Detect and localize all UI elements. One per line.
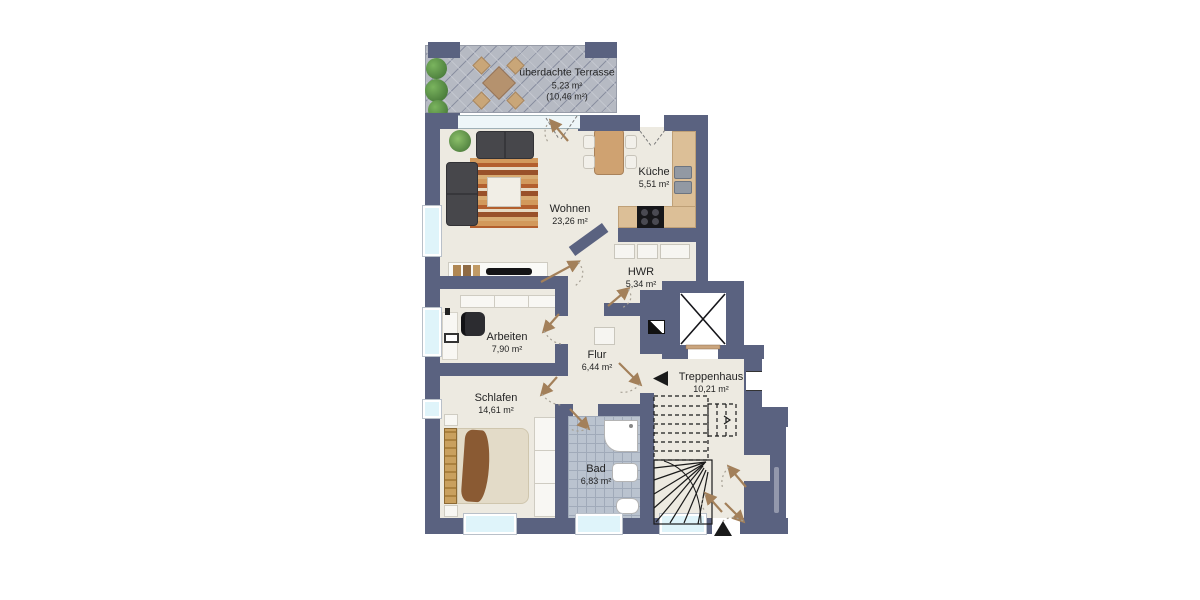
- wall: [425, 416, 440, 518]
- washer: [637, 244, 658, 259]
- wall: [744, 407, 788, 427]
- dining-chair: [625, 135, 637, 149]
- window: [423, 308, 441, 356]
- sofa: [476, 131, 534, 159]
- room-label-wohnen: Wohnen 23,26 m²: [550, 202, 591, 228]
- washbasin: [612, 463, 638, 482]
- window: [660, 514, 706, 534]
- wall: [696, 128, 708, 281]
- wall: [740, 518, 788, 534]
- wall: [425, 113, 460, 129]
- floor-staircase-niche: [744, 455, 770, 481]
- cabinet: [594, 327, 615, 345]
- nightstand: [444, 505, 458, 517]
- wall: [425, 128, 440, 208]
- dining-chair: [625, 155, 637, 169]
- wall-lamp: [445, 308, 450, 315]
- books: [473, 265, 480, 276]
- tv-soundbar: [486, 268, 532, 275]
- wall: [425, 518, 468, 534]
- shower-drain: [629, 424, 633, 428]
- toilet: [616, 498, 639, 514]
- burner: [652, 209, 659, 216]
- entrance-arrow-icon: [714, 521, 732, 536]
- bed-headboard: [444, 428, 457, 504]
- terrace-glass-door: [458, 115, 580, 129]
- nightstand: [444, 414, 458, 426]
- wall: [425, 354, 440, 402]
- washer: [614, 244, 635, 259]
- dining-chair: [583, 135, 595, 149]
- room-label-treppenhaus: Treppenhaus 10,21 m²: [679, 370, 743, 396]
- elevator-door-gap: [688, 349, 718, 359]
- wall: [744, 481, 770, 518]
- room-label-flur: Flur 6,44 m²: [582, 348, 613, 374]
- wall: [555, 276, 568, 316]
- wall: [514, 518, 578, 534]
- room-label-kueche: Küche 5,51 m²: [638, 165, 669, 191]
- wall: [425, 363, 568, 376]
- window: [423, 206, 441, 256]
- wall: [744, 427, 770, 455]
- coffee-table: [487, 177, 521, 207]
- sofa: [446, 162, 478, 226]
- kitchen-sink: [674, 181, 692, 194]
- wall: [620, 518, 662, 534]
- room-label-hwr: HWR 5,34 m²: [626, 265, 657, 291]
- window: [464, 514, 516, 534]
- room-label-arbeiten: Arbeiten 7,90 m²: [487, 330, 528, 356]
- room-label-terrasse: überdachte Terrasse 5,23 m² (10,46 m²): [519, 66, 615, 103]
- staircase-side-door: [746, 371, 762, 391]
- books: [453, 265, 461, 276]
- wall: [555, 406, 568, 518]
- monitor: [444, 333, 459, 343]
- cabinet: [660, 244, 690, 259]
- elevator-cab: [680, 293, 726, 345]
- wall: [428, 42, 460, 58]
- wall: [770, 427, 786, 518]
- terrace-plant: [426, 58, 447, 79]
- wall: [744, 345, 764, 359]
- window: [576, 514, 622, 534]
- shelf: [460, 295, 562, 308]
- floor-plan-canvas: überdachte Terrasse 5,23 m² (10,46 m²) W…: [0, 0, 1200, 600]
- wall: [618, 228, 706, 242]
- wall: [555, 404, 573, 416]
- room-label-bad: Bad 6,83 m²: [581, 462, 612, 488]
- threshold-symbol: [648, 320, 665, 334]
- wall: [425, 254, 440, 310]
- wall: [585, 42, 617, 58]
- books: [463, 265, 471, 276]
- wall: [640, 393, 654, 518]
- wall: [578, 115, 640, 131]
- room-label-schlafen: Schlafen 14,61 m²: [475, 391, 518, 417]
- plant: [449, 130, 471, 152]
- dining-table: [594, 129, 624, 175]
- window: [423, 400, 441, 418]
- terrace-plant: [425, 79, 448, 102]
- dining-chair: [583, 155, 595, 169]
- burner: [641, 209, 648, 216]
- kitchen-sink: [674, 166, 692, 179]
- office-chair: [461, 312, 485, 336]
- wall: [425, 276, 568, 289]
- burner: [652, 218, 659, 225]
- burner: [641, 218, 648, 225]
